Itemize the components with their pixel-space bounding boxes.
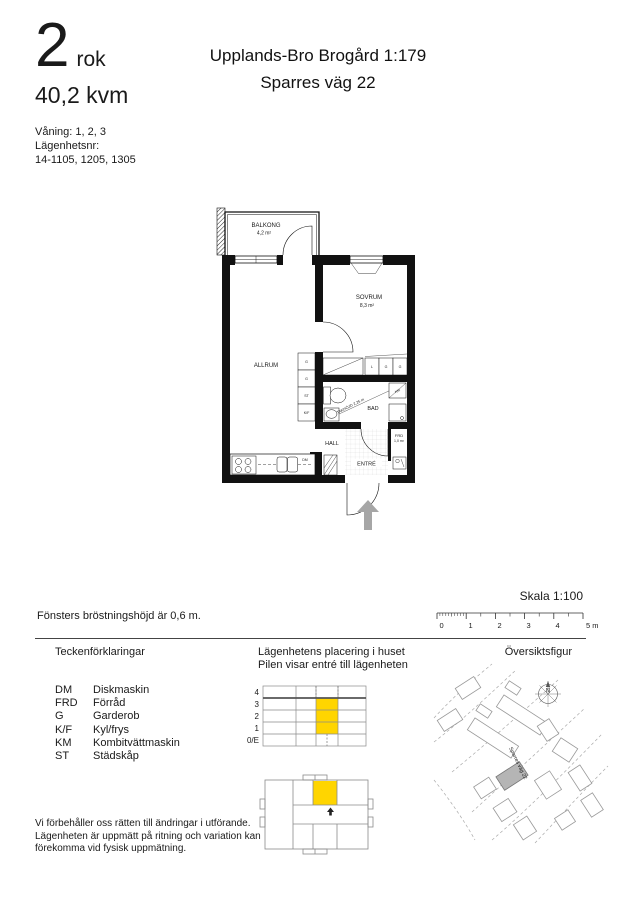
legend-item: DM Diskmaskin: [55, 684, 180, 697]
toilet-bowl: [330, 388, 346, 403]
balcony-railing-inner: [228, 215, 317, 256]
legend-label: Diskmaskin: [93, 684, 180, 697]
legend-abbr: K/F: [55, 724, 93, 737]
stove: [232, 456, 256, 474]
toilet-tank: [324, 387, 331, 404]
legend-label: Förråd: [93, 697, 180, 710]
floorplan-page: 2 rok 40,2 kvm Våning: 1, 2, 3 Lägenhets…: [0, 0, 636, 900]
floor-label-2: 2: [255, 712, 260, 721]
legend-abbr: FRD: [55, 697, 93, 710]
bathroom-label: BAD: [367, 406, 378, 412]
highlighted-floors: [316, 698, 338, 734]
scale-tick-1: 1: [469, 621, 473, 630]
bathroom-fixtures: [324, 383, 407, 421]
bedroom-door-swing: [323, 322, 353, 352]
apartment-meta: Våning: 1, 2, 3 Lägenhetsnr: 14-1105, 12…: [35, 125, 136, 167]
overview-title: Översiktsfigur: [430, 646, 572, 658]
wardrobe-label-3: G: [399, 365, 402, 369]
legend-item: G Garderob: [55, 710, 180, 723]
closet-label-3: ST: [304, 394, 309, 398]
unit-entrance-arrow: [327, 808, 334, 816]
disclaimer-line1: Vi förbehåller oss rätten till ändringar…: [35, 818, 261, 831]
scale-tick-2: 2: [498, 621, 502, 630]
section-divider: [35, 638, 586, 639]
closet-label-1: G: [305, 360, 308, 364]
page-title: Upplands-Bro Brogård 1:179 Sparres väg 2…: [148, 42, 488, 96]
party-wall-hatch: [217, 208, 225, 255]
hall-label: HALL: [325, 441, 339, 447]
scale-tick-5: 5 m: [586, 621, 599, 630]
windows: [235, 256, 383, 274]
scale-tick-3: 3: [527, 621, 531, 630]
balcony-area-label: 4,2 m²: [257, 231, 272, 237]
buildings: [437, 677, 603, 840]
placement-title-line2: Pilen visar entré till lägenheten: [258, 659, 408, 672]
livingroom-label: ALLRUM: [254, 363, 278, 369]
bedroom-label: SOVRUM: [356, 295, 382, 301]
balcony-door-swing: [283, 226, 312, 255]
legend-abbr: G: [55, 710, 93, 723]
scale-tick-0: 0: [440, 621, 444, 630]
scale-tick-4: 4: [556, 621, 560, 630]
legend-title: Teckenförklaringar: [55, 646, 180, 658]
electrical-cabinet: [393, 457, 406, 469]
wardrobe-label-2: G: [385, 365, 388, 369]
legend-label: Kombitvättmaskin: [93, 737, 180, 750]
bedroom-window-sill: [351, 263, 382, 274]
balcony-railing-outer: [225, 212, 319, 255]
entry-tiles: [345, 429, 388, 475]
floor-label-0e: 0/E: [247, 736, 259, 745]
disclaimer: Vi förbehåller oss rätten till ändringar…: [35, 818, 261, 856]
closet-label-2: G: [305, 377, 308, 381]
legend-label: Garderob: [93, 710, 180, 723]
street-address: Sparres väg 22: [148, 69, 488, 96]
apartment-number-label: Lägenhetsnr:: [35, 139, 136, 153]
closet-label-4: K/F: [304, 411, 310, 415]
legend-item: KM Kombitvättmaskin: [55, 737, 180, 750]
floorplan-drawing: BALKONG 4,2 m²: [213, 203, 423, 533]
floor-label-3: 3: [255, 700, 260, 709]
rooms-unit: rok: [76, 48, 105, 72]
rooms-count: 2 rok: [35, 16, 136, 76]
floor-label-1: 1: [255, 724, 260, 733]
placement-title: Lägenhetens placering i huset Pilen visa…: [258, 646, 408, 672]
floor-label-4: 4: [255, 688, 260, 697]
scale-label: Skala 1:100: [480, 589, 583, 603]
disclaimer-line3: förekomma vid fysisk uppmätning.: [35, 843, 261, 856]
highlighted-unit: [313, 781, 337, 805]
scale-bar: 0 1 2 3 4 5 m: [435, 611, 605, 635]
disclaimer-line2: Lägenheten är uppmätt på ritning och var…: [35, 831, 261, 844]
legend: Teckenförklaringar DM Diskmaskin FRD För…: [55, 646, 180, 763]
building-footprint: [255, 770, 380, 858]
project-title: Upplands-Bro Brogård 1:179: [148, 42, 488, 69]
legend-abbr: KM: [55, 737, 93, 750]
bedroom-area-label: 8,3 m²: [360, 303, 375, 309]
placement-title-line1: Lägenhetens placering i huset: [258, 646, 408, 659]
entrance-arrow: [357, 500, 379, 530]
frd-area-label: 1,0 m²: [394, 439, 405, 443]
north-arrow: [546, 681, 550, 687]
wardrobe-label-1: L: [371, 365, 373, 369]
floor-numbers: Våning: 1, 2, 3: [35, 125, 136, 139]
legend-item: K/F Kyl/frys: [55, 724, 180, 737]
window-height-note: Fönsters bröstningshöjd är 0,6 m.: [37, 610, 201, 622]
building-elevation: 4 3 2 1 0/E: [243, 684, 383, 754]
balcony: BALKONG 4,2 m²: [217, 208, 319, 255]
sink: [277, 457, 287, 472]
entry-label: ENTRÉ: [357, 461, 376, 468]
apartment-summary: 2 rok 40,2 kvm Våning: 1, 2, 3 Lägenhets…: [35, 16, 136, 167]
bedroom-wardrobes: [323, 354, 407, 375]
rooms-number: 2: [35, 16, 69, 76]
apartment-numbers: 14-1105, 1205, 1305: [35, 153, 136, 167]
legend-abbr: ST: [55, 750, 93, 763]
apartment-area: 40,2 kvm: [35, 82, 136, 109]
legend-label: Städskåp: [93, 750, 180, 763]
north-label: N: [546, 689, 550, 695]
legend-abbr: DM: [55, 684, 93, 697]
legend-label: Kyl/frys: [93, 724, 180, 737]
legend-item: ST Städskåp: [55, 750, 180, 763]
legend-item: FRD Förråd: [55, 697, 180, 710]
dishwasher-label: DM: [302, 458, 308, 462]
storage-frd: [393, 457, 406, 469]
site-map: Sparres väg 22 N: [430, 660, 615, 845]
frd-label: FRD: [395, 433, 403, 438]
balcony-label: BALKONG: [251, 223, 280, 229]
